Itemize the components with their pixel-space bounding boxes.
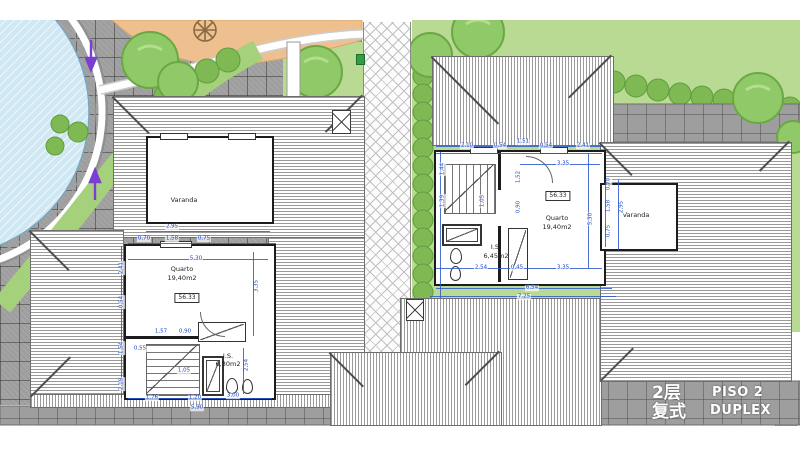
page-margin-top (0, 0, 800, 20)
room-label: Varanda (171, 197, 198, 204)
area-code-box: 56.33 (545, 191, 570, 201)
dimension-label: 1,58 (165, 236, 179, 242)
room-label: I.S. (491, 244, 501, 251)
dimension-label: 2,10 (460, 143, 474, 149)
dimension-label: 3,35 (254, 279, 260, 293)
room-label: 6,30m2 (216, 361, 241, 368)
footer-floor-label-cn: 2层 (652, 385, 681, 402)
dimension-label: 1,05 (177, 368, 191, 374)
dimension-label: 0,70 (137, 236, 151, 242)
dimension-label: 2,95 (619, 200, 625, 214)
dimension-label: 2,41 (576, 143, 590, 149)
area-code-box: 56.33 (174, 293, 199, 303)
room-label: 19,40m2 (542, 224, 571, 231)
dimension-label: 3,35 (556, 161, 570, 167)
dimension-label: 5,30 (588, 212, 594, 226)
page-margin-bottom (0, 426, 800, 450)
dimension-label: 1,51 (516, 139, 530, 145)
room-label: Varanda (623, 212, 650, 219)
room-label: 6,45m2 (484, 253, 509, 260)
dimension-label: 1,39 (440, 194, 446, 208)
dimension-label: 0,45 (510, 265, 524, 271)
dimension-label: 5,30 (189, 256, 203, 262)
dimension-label: 3,35 (556, 265, 570, 271)
dimension-label: 0,90 (516, 200, 522, 214)
dimension-line (253, 252, 254, 336)
dimension-label: 1,44 (440, 162, 446, 176)
dimension-label: 1,54 (119, 341, 125, 355)
dimension-label: 2,19 (119, 377, 125, 391)
room-label: Quarto (171, 266, 193, 273)
dimension-label: 1,52 (516, 170, 522, 184)
dimension-label: 2,54 (244, 358, 250, 372)
room-label: 19,40m2 (167, 275, 196, 282)
dimension-label: 0,70 (606, 177, 612, 191)
dimension-label: 2,41 (119, 261, 125, 275)
dimension-label: 0,55 (133, 346, 147, 352)
site-plan-canvas: VarandaQuarto19,40m2I.S.6,30m22,950,701,… (0, 0, 800, 450)
dimension-label: 2,54 (474, 265, 488, 271)
dimension-label: 0,54 (119, 295, 125, 309)
dimension-line (618, 180, 619, 250)
dimension-label: 1,57 (154, 329, 168, 335)
dimension-line (436, 153, 602, 154)
dimension-label: 5,90 (190, 405, 204, 411)
dimension-label: 1,76 (145, 395, 159, 401)
footer-type-label-cn: 复式 (652, 404, 686, 421)
dimension-label: 6,54 (525, 285, 539, 291)
dimension-label: 1,20 (188, 395, 202, 401)
dimension-line (146, 231, 270, 232)
footer-floor-label-pt: PISO 2 (712, 386, 763, 399)
dimension-label: 0,54 (539, 143, 553, 149)
dimension-label: 0,75 (197, 236, 211, 242)
room-label: I.S. (223, 353, 233, 360)
footer-type-label-pt: DUPLEX (710, 404, 771, 417)
dimension-line (128, 243, 276, 244)
dimension-label: 7,25 (517, 294, 531, 300)
dimension-label: 1,58 (606, 199, 612, 213)
dimension-label: 0,75 (606, 224, 612, 238)
dimension-label: 1,05 (480, 194, 486, 208)
dimension-label: 0,90 (178, 329, 192, 335)
dimension-label: 0,54 (493, 143, 507, 149)
dimension-label: 3,00 (226, 393, 240, 399)
room-label: Quarto (546, 215, 568, 222)
dimension-label: 2,95 (165, 224, 179, 230)
